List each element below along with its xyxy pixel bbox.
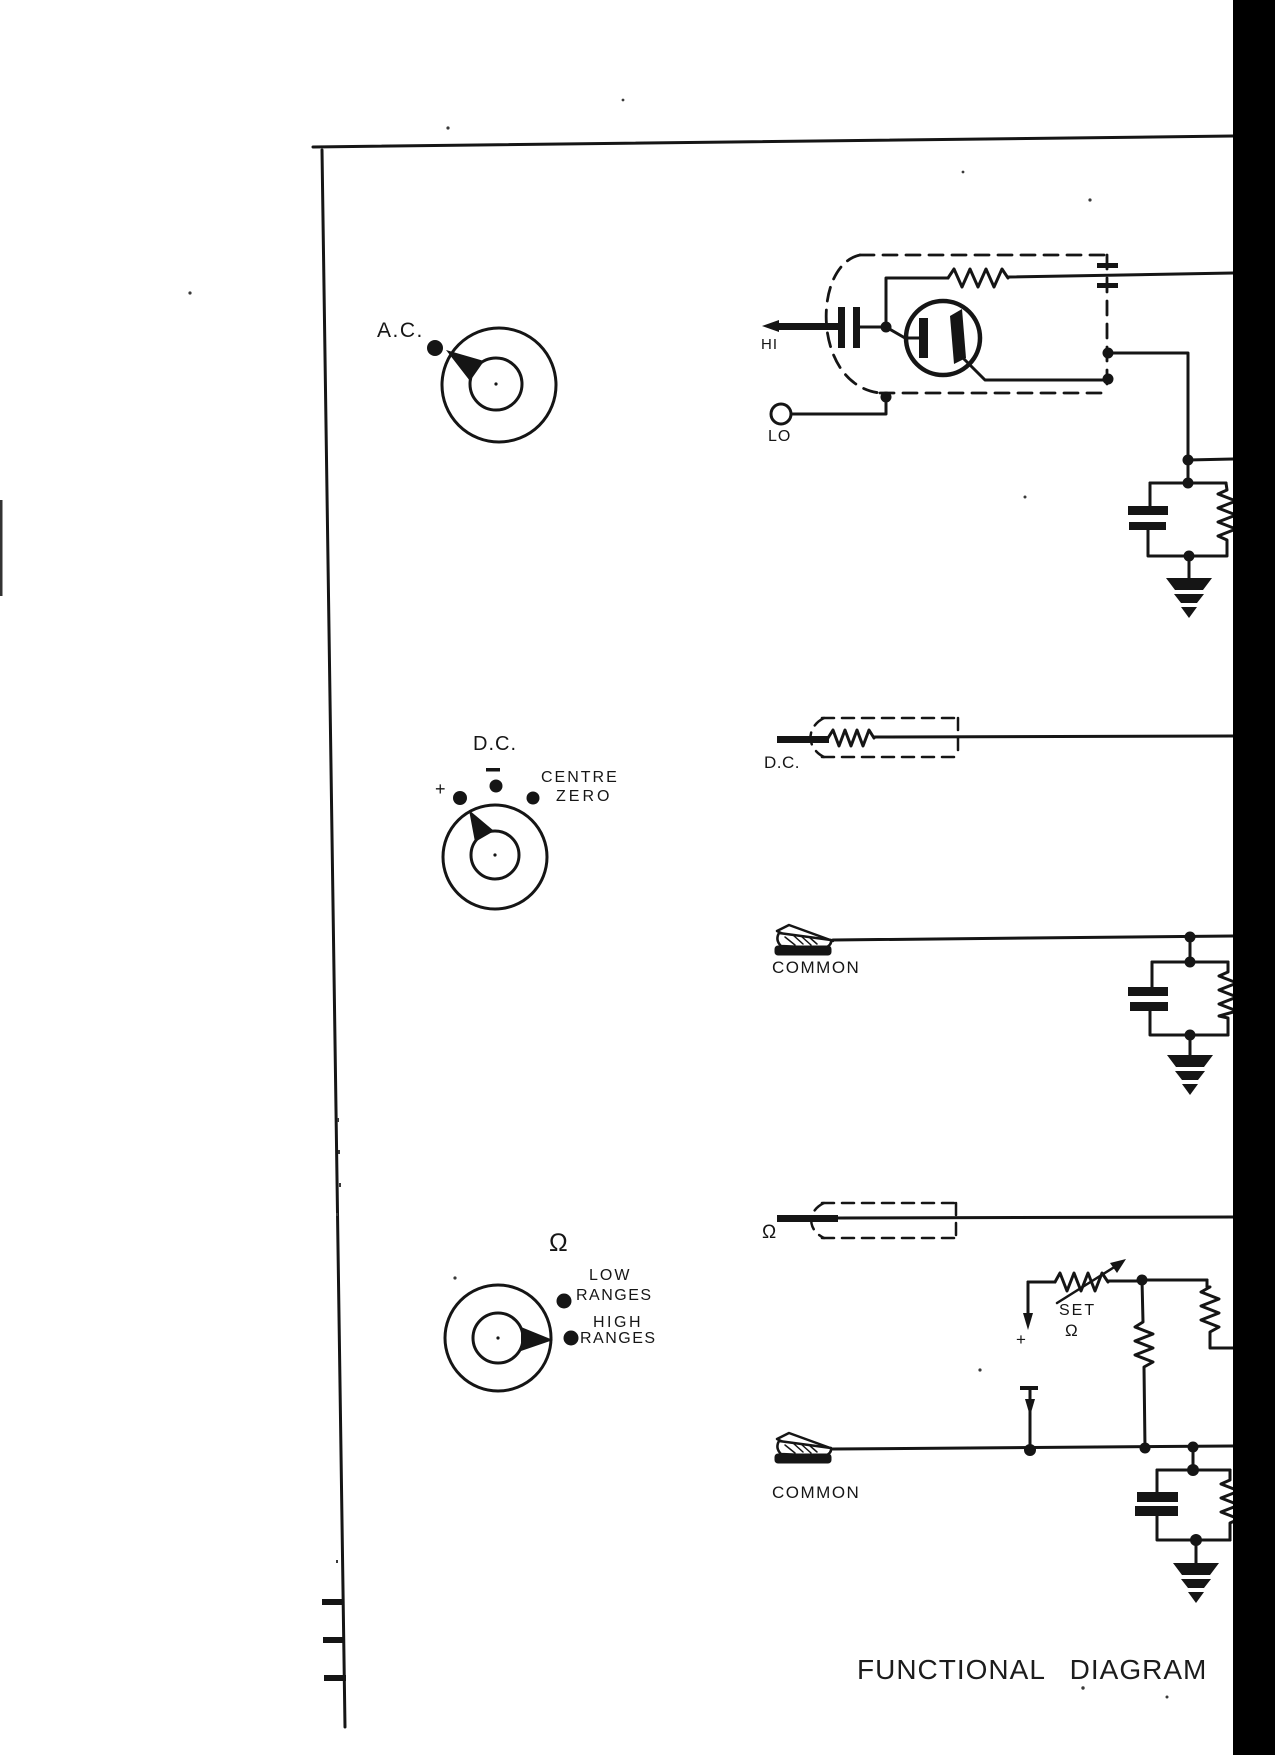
ohms-probe-label: Ω (762, 1223, 776, 1242)
common-lead-lower (776, 1433, 833, 1462)
current-arrow (1025, 1399, 1035, 1416)
ac-position-dot (427, 340, 443, 356)
filter-capacitor (1128, 506, 1168, 515)
battery-plus-label: + (1016, 1331, 1026, 1348)
page-border (0, 136, 1233, 1727)
lo-terminal (771, 400, 886, 424)
diagram-caption: FUNCTIONAL DIAGRAM OF (857, 1656, 1273, 1684)
ohms-bridge-circuit (833, 1259, 1233, 1456)
centre-zero-dot (527, 792, 540, 805)
centre-zero-label-line1: CENTRE (541, 770, 619, 786)
common-label-lower: COMMON (772, 1484, 860, 1501)
current-arrow (1023, 1313, 1033, 1330)
ac-filter-network (1108, 353, 1236, 618)
dc-probe (777, 718, 1233, 757)
knob-center-mark (494, 382, 497, 385)
hi-probe-tip (762, 320, 840, 332)
low-ranges-label-line1: LOW (589, 1268, 631, 1284)
ac-range-knob (427, 328, 556, 442)
ground-symbol (1166, 578, 1212, 618)
minus-mark (486, 768, 500, 772)
ohms-range-knob (445, 1285, 579, 1391)
dc-probe-label: D.C. (764, 754, 800, 771)
knob-pointer (446, 350, 484, 381)
dc-plus-dot (453, 791, 467, 805)
common-lead-upper (776, 925, 1233, 954)
schematic-linework (0, 0, 1275, 1755)
set-ohms-label-line2: Ω (1065, 1322, 1078, 1339)
hi-lead-label: HI (761, 337, 778, 352)
plate-load-resistor (886, 269, 1233, 327)
low-ranges-dot (557, 1294, 572, 1309)
ground-symbol (1173, 1563, 1219, 1603)
high-ranges-label-line2: RANGES (580, 1331, 657, 1347)
ground-symbol (1167, 1055, 1213, 1095)
tube-grid (919, 318, 928, 358)
probe-resistor (828, 730, 874, 746)
scanned-page: A.C. D.C. + CENTRE ZERO Ω LOW RANGES HIG… (0, 0, 1275, 1755)
centre-zero-label-line2: ZERO (556, 789, 612, 805)
knob-center-mark (493, 853, 496, 856)
common-rail (833, 1446, 1233, 1449)
knob-pointer (469, 810, 494, 842)
dc-minus-dot (490, 780, 503, 793)
dc-knob-label: D.C. (473, 734, 517, 754)
ac-knob-label: A.C. (377, 320, 424, 341)
low-ranges-label-line2: RANGES (576, 1288, 653, 1304)
set-ohms-label-line1: SET (1059, 1303, 1096, 1319)
ohms-knob-symbol: Ω (549, 1231, 568, 1256)
plate-output-wire (963, 358, 1105, 380)
alligator-clip (776, 1433, 833, 1462)
knob-center-mark (496, 1336, 499, 1339)
divider-resistor (1201, 1280, 1233, 1348)
lo-lead-label: LO (768, 429, 791, 445)
probe-tip (777, 736, 829, 743)
junction-dot (1103, 374, 1114, 385)
series-resistor (1135, 1280, 1153, 1448)
filter-capacitor (1137, 1492, 1178, 1502)
junction-dot (1024, 1444, 1036, 1456)
ohms-probe (777, 1203, 1233, 1238)
tube-plate (950, 309, 966, 364)
dc-plus-label: + (435, 780, 446, 798)
dc-filter-network (1128, 932, 1237, 1096)
high-ranges-label-line1: HIGH (593, 1315, 643, 1331)
scan-gutter-bar (1233, 0, 1275, 1755)
common-label-upper: COMMON (772, 959, 860, 976)
ac-probe-assembly (762, 255, 1233, 403)
series-capacitor (838, 307, 860, 348)
ohms-filter-network (1135, 1442, 1239, 1604)
scan-noise (188, 99, 1168, 1699)
probe-tip (777, 1215, 838, 1222)
alligator-clip (776, 925, 833, 954)
filter-capacitor (1128, 987, 1168, 996)
high-ranges-dot (564, 1331, 579, 1346)
knob-pointer (521, 1327, 553, 1351)
dc-range-knob (443, 768, 547, 909)
